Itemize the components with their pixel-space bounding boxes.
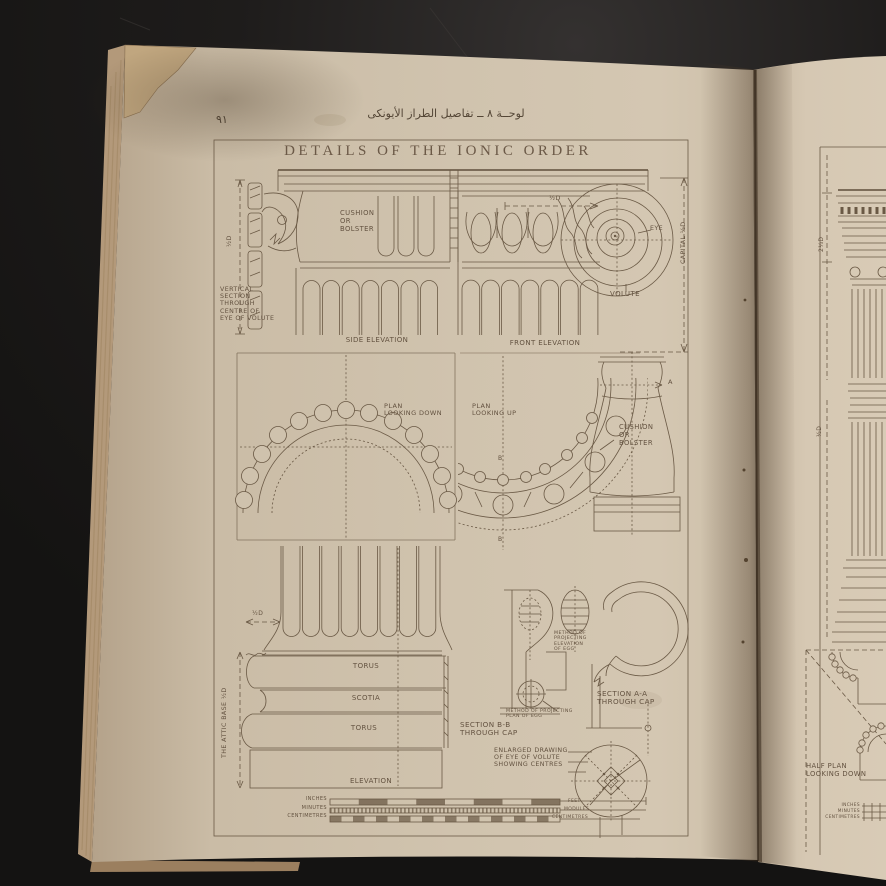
book-pages — [78, 38, 886, 880]
book-photo-scene: ٩١ لوحــة ٨ ــ تفاصيل الطراز الأيونكى DE… — [0, 0, 886, 886]
gutter-shadow — [700, 62, 762, 862]
book-illustration — [0, 0, 886, 886]
